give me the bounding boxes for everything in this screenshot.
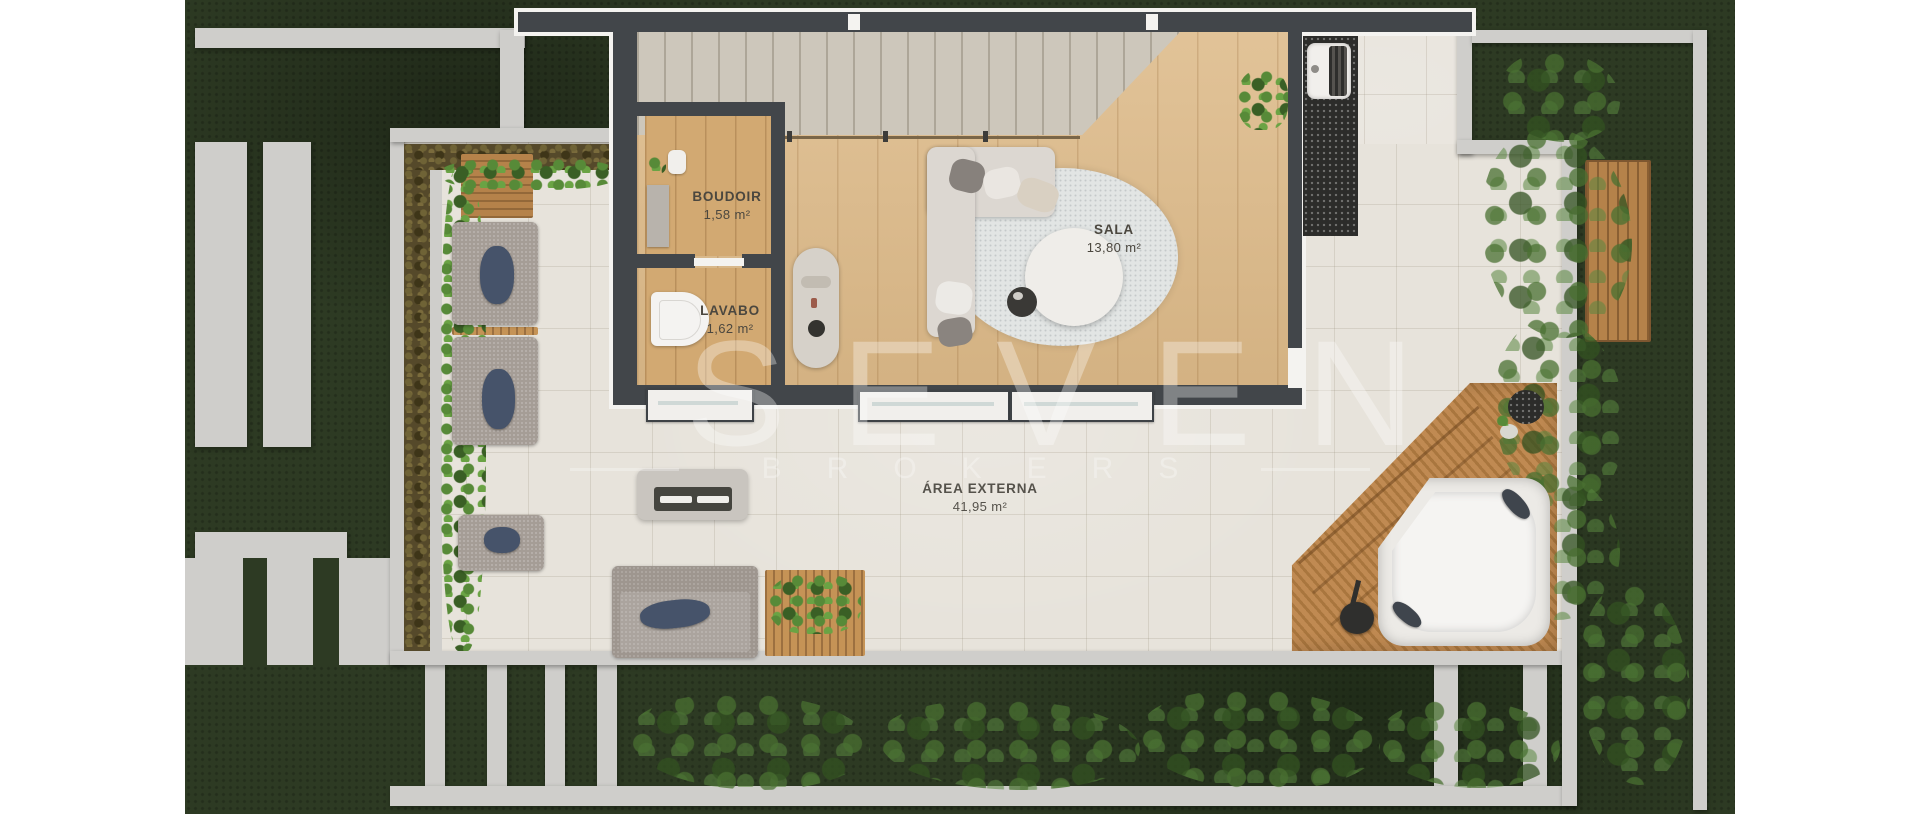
deck-small-pot: [1500, 424, 1518, 439]
planter-box-plants: [769, 574, 861, 634]
fire-table: [637, 469, 748, 520]
garden-path-top: [195, 28, 525, 48]
garden-wall-outer-right: [1693, 30, 1707, 810]
lounger-pillow: [480, 246, 514, 304]
rail-post: [787, 131, 792, 142]
table-bowl: [1007, 287, 1037, 317]
pergola-pillar: [545, 665, 565, 786]
garden-path-vertical-2: [263, 142, 311, 447]
floorplan-canvas: BOUDOIR 1,58 m² LAVABO 1,62 m² SALA 13,8…: [0, 0, 1920, 814]
door-marker: [848, 14, 860, 30]
garden-path-lower: [195, 532, 347, 558]
basin-accent: [811, 298, 817, 308]
basin-drain: [808, 320, 825, 337]
right-wall-opening: [1288, 348, 1302, 388]
basin-objects: [801, 276, 831, 288]
boudoir-wall-right: [771, 102, 785, 385]
room-area: 41,95 m²: [880, 499, 1080, 514]
pergola-pillar: [425, 665, 445, 786]
room-name: BOUDOIR: [647, 189, 807, 204]
house-wall-left: [613, 12, 637, 405]
room-area: 13,80 m²: [1034, 240, 1194, 255]
driveway-grass-strip: [313, 558, 339, 665]
garden-wall-top-right: [1472, 30, 1707, 43]
hedge-top: [442, 158, 617, 190]
lavabo-door-leaf: [694, 258, 744, 266]
sink-cover-slats: [1329, 46, 1347, 96]
terrace-wall-top-left: [390, 128, 615, 142]
outdoor-chair: [458, 515, 544, 571]
terrace-wall-right-upper: [1457, 30, 1472, 154]
garden-lower-wall: [390, 786, 1575, 806]
deck-pot-plant: [1496, 414, 1512, 426]
window-glass-line: [872, 402, 994, 406]
bowl-highlight: [1013, 292, 1023, 300]
pergola-pillar: [487, 665, 507, 786]
room-name: LAVABO: [650, 303, 810, 318]
driveway-pavement: [185, 558, 395, 665]
pergola-pillar: [597, 665, 617, 786]
window-glass-line: [658, 401, 738, 405]
room-name: SALA: [1034, 222, 1194, 237]
room-area: 1,62 m²: [650, 321, 810, 336]
planter-box: [765, 570, 865, 656]
rail-post: [983, 131, 988, 142]
boudoir-wall-top: [633, 102, 785, 116]
terrace-wall-bottom: [390, 651, 1577, 665]
room-label-area-externa: ÁREA EXTERNA 41,95 m²: [880, 481, 1080, 514]
sunbed-lounger: [452, 337, 538, 445]
rail-post: [883, 131, 888, 142]
chair-pillow: [484, 527, 520, 553]
window-glass-line: [1024, 402, 1138, 406]
outdoor-shower-base: [1340, 602, 1374, 634]
fire-table-slot: [660, 496, 692, 503]
indoor-plant: [1238, 70, 1288, 130]
fire-table-slot: [697, 496, 729, 503]
boudoir-plant: [648, 156, 666, 174]
window-sill: [1010, 390, 1154, 422]
window-sill: [858, 390, 1010, 422]
sunbed-lounger: [452, 222, 538, 325]
window-sill: [646, 388, 754, 422]
driveway-grass-strip: [243, 558, 267, 665]
garden-path-connector: [500, 30, 524, 142]
boudoir-chair: [668, 150, 686, 174]
sofa-cushion-white: [934, 280, 974, 317]
garden-path-vertical-1: [195, 142, 247, 447]
room-label-sala: SALA 13,80 m²: [1034, 222, 1194, 255]
house-wall-right: [1288, 12, 1302, 405]
room-label-boudoir: BOUDOIR 1,58 m²: [647, 189, 807, 222]
sink-faucet: [1311, 65, 1319, 73]
room-label-lavabo: LAVABO 1,62 m²: [650, 303, 810, 336]
room-name: ÁREA EXTERNA: [880, 481, 1080, 496]
room-area: 1,58 m²: [647, 207, 807, 222]
lounger-pillow: [482, 369, 515, 429]
terrace-wall-left: [390, 140, 404, 665]
planter-bed-left: [404, 170, 430, 651]
page-margin-left: [0, 0, 185, 814]
deck-plant-pot: [1508, 390, 1544, 424]
door-marker: [1146, 14, 1158, 30]
outdoor-sofa: [612, 566, 758, 658]
kitchen-sink: [1307, 43, 1351, 99]
house-wall-top: [518, 12, 1472, 32]
page-margin-right: [1735, 0, 1920, 814]
boudoir-lavabo-divider: [633, 254, 695, 268]
